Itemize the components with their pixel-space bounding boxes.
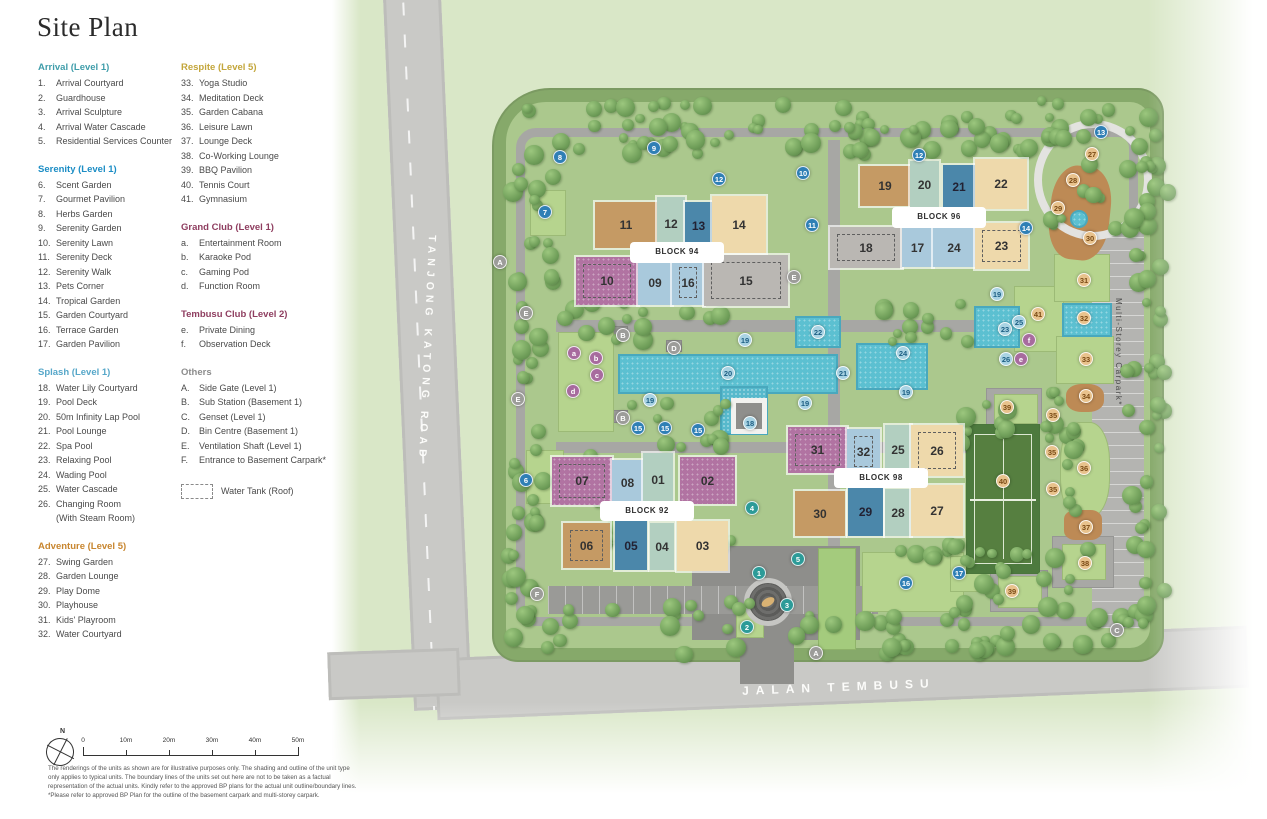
marker-34: 34 <box>1079 389 1093 403</box>
marker-31: 31 <box>1077 273 1091 287</box>
disclaimer-line: only applies to typical units. The bound… <box>48 773 356 782</box>
legend-item-label: Side Gate (Level 1) <box>199 381 277 396</box>
tree <box>1038 597 1058 617</box>
tree <box>605 603 620 618</box>
tree <box>529 328 548 347</box>
entrance-hedge <box>818 548 856 650</box>
legend-item-label: Kids' Playroom <box>56 613 116 628</box>
marker-D: D <box>667 341 681 355</box>
marker-14: 14 <box>1019 221 1033 235</box>
marker-B: B <box>616 328 630 342</box>
legend-item: 24.Wading Pool <box>38 468 180 483</box>
legend-item: 27.Swing Garden <box>38 555 180 570</box>
legend-item-label: Leisure Lawn <box>199 120 253 135</box>
legend-item-key: 1. <box>38 76 56 91</box>
tree <box>720 399 731 410</box>
legend-item-key: 11. <box>38 250 56 265</box>
marker-16: 16 <box>899 576 913 590</box>
tree <box>958 618 970 630</box>
legend-item: 10.Serenity Lawn <box>38 236 180 251</box>
legend-item: D.Bin Centre (Basement 1) <box>181 424 339 439</box>
tree <box>635 114 645 124</box>
legend-item-key: 41. <box>181 192 199 207</box>
tree <box>1144 363 1154 373</box>
tree <box>522 104 532 114</box>
tree <box>996 564 1011 579</box>
legend-item-key: 19. <box>38 395 56 410</box>
marker-37: 37 <box>1079 520 1093 534</box>
legend-item-label: Playhouse <box>56 598 98 613</box>
legend-item-label: Scent Garden <box>56 178 112 193</box>
scale-tick-label: 30m <box>206 737 219 744</box>
legend-item-label: Entrance to Basement Carpark* <box>199 453 326 468</box>
legend-section: Respite (Level 5)33.Yoga Studio34.Medita… <box>181 62 339 207</box>
legend-item-label: 50m Infinity Lap Pool <box>56 410 140 425</box>
legend-item-label: Gourmet Pavilion <box>56 192 125 207</box>
fountain-center <box>760 595 776 609</box>
legend-item: 5.Residential Services Counter <box>38 134 180 149</box>
tree <box>1011 113 1022 124</box>
tree <box>529 515 544 530</box>
tree <box>968 118 985 135</box>
legend-item: F.Entrance to Basement Carpark* <box>181 453 339 468</box>
tree <box>713 438 730 455</box>
legend-item-key: 30. <box>38 598 56 613</box>
legend-item-label: Residential Services Counter <box>56 134 172 149</box>
legend-item-key: 23. <box>38 453 56 468</box>
marker-E: E <box>519 306 533 320</box>
marker-39: 39 <box>1005 584 1019 598</box>
legend-item-label: Sub Station (Basement 1) <box>199 395 302 410</box>
legend-item-key: 14. <box>38 294 56 309</box>
legend-item-key: 34. <box>181 91 199 106</box>
legend-item-key: 36. <box>181 120 199 135</box>
tree <box>512 163 525 176</box>
scale-tick-label: 50m <box>292 737 305 744</box>
legend-item: 13.Pets Corner <box>38 279 180 294</box>
legend-item-key: 5. <box>38 134 56 149</box>
legend-item: 20.50m Infinity Lap Pool <box>38 410 180 425</box>
marker-e: e <box>1014 352 1028 366</box>
legend-item: 17.Garden Pavilion <box>38 337 180 352</box>
tree <box>573 143 585 155</box>
marker-F: F <box>530 587 544 601</box>
unit-01: 01 <box>643 453 673 506</box>
tree <box>1149 129 1162 142</box>
scale-tick-label: 0 <box>81 737 85 744</box>
legend-item-key: 9. <box>38 221 56 236</box>
tree <box>947 539 963 555</box>
legend-item: 7.Gourmet Pavilion <box>38 192 180 207</box>
legend-item-label: Guardhouse <box>56 91 106 106</box>
scale-tick <box>126 750 127 756</box>
tree <box>542 247 559 264</box>
tree <box>960 555 971 566</box>
legend-item-key: A. <box>181 381 199 396</box>
tree <box>512 506 525 519</box>
legend-item-key: 17. <box>38 337 56 352</box>
tree <box>675 646 693 664</box>
unit-06: 06 <box>563 523 610 568</box>
marker-39: 39 <box>1000 400 1014 414</box>
tree <box>586 101 602 117</box>
marker-30: 30 <box>1083 231 1097 245</box>
tree <box>903 302 920 319</box>
legend-item: 18.Water Lily Courtyard <box>38 381 180 396</box>
legend-item-key: 3. <box>38 105 56 120</box>
legend-item-label: Lounge Deck <box>199 134 252 149</box>
tree <box>1138 618 1148 628</box>
tree <box>514 177 528 191</box>
tree <box>1037 96 1046 105</box>
tree <box>732 602 746 616</box>
marker-12: 12 <box>712 172 726 186</box>
tree <box>990 134 1008 152</box>
legend-item-key: 2. <box>38 91 56 106</box>
legend-item-label: Spa Pool <box>56 439 93 454</box>
legend-item-label: Herbs Garden <box>56 207 113 222</box>
unit-29: 29 <box>848 487 883 536</box>
legend-item-label: Pool Lounge <box>56 424 107 439</box>
marker-32: 32 <box>1077 311 1091 325</box>
marker-24: 24 <box>896 346 910 360</box>
legend-item-key: D. <box>181 424 199 439</box>
wading-pool <box>856 343 928 390</box>
legend-item: 22.Spa Pool <box>38 439 180 454</box>
legend-item: 6.Scent Garden <box>38 178 180 193</box>
legend-section: Arrival (Level 1)1.Arrival Courtyard2.Gu… <box>38 62 180 149</box>
legend-column-2: Respite (Level 5)33.Yoga Studio34.Medita… <box>181 62 339 499</box>
tree <box>531 424 546 439</box>
unit-17: 17 <box>902 228 933 267</box>
legend-item: 2.Guardhouse <box>38 91 180 106</box>
legend-item: 25.Water Cascade <box>38 482 180 497</box>
tree <box>542 618 559 635</box>
marker-B: B <box>616 411 630 425</box>
relaxing-pool <box>974 306 1020 348</box>
marker-A: A <box>493 255 507 269</box>
tree <box>1085 187 1102 204</box>
marker-15: 15 <box>631 421 645 435</box>
block-label: BLOCK 98 <box>834 473 928 485</box>
legend-item: 16.Terrace Garden <box>38 323 180 338</box>
legend-item-label: Changing Room (With Steam Room) <box>56 497 135 526</box>
tree <box>544 269 560 285</box>
page-title: Site Plan <box>37 12 138 43</box>
tree <box>835 100 852 117</box>
legend-item-label: Ventilation Shaft (Level 1) <box>199 439 302 454</box>
legend-section: Splash (Level 1)18.Water Lily Courtyard1… <box>38 367 180 526</box>
marker-35: 35 <box>1046 482 1060 496</box>
legend-item-label: Pool Deck <box>56 395 97 410</box>
legend-item-label: Arrival Sculpture <box>56 105 122 120</box>
scale-tick <box>169 750 170 756</box>
legend-section: Tembusu Club (Level 2)e.Private Diningf.… <box>181 309 339 352</box>
tree <box>686 130 705 149</box>
marker-10: 10 <box>796 166 810 180</box>
scale-tick-label: 20m <box>163 737 176 744</box>
tree <box>529 195 540 206</box>
legend-item-key: 33. <box>181 76 199 91</box>
tree <box>662 136 678 152</box>
legend-item-label: Co-Working Lounge <box>199 149 279 164</box>
legend-item-label: Wading Pool <box>56 468 107 483</box>
marker-E: E <box>511 392 525 406</box>
marker-18: 18 <box>743 416 757 430</box>
legend-item: 31.Kids' Playroom <box>38 613 180 628</box>
marker-3: 3 <box>780 598 794 612</box>
tree <box>1055 130 1072 147</box>
legend-item-label: Garden Pavilion <box>56 337 120 352</box>
tree <box>508 273 526 291</box>
legend-item-label: Observation Deck <box>199 337 271 352</box>
legend-section-heading: Grand Club (Level 1) <box>181 222 339 233</box>
legend-item: 12.Serenity Walk <box>38 265 180 280</box>
legend-item: 26.Changing Room (With Steam Room) <box>38 497 180 526</box>
legend-item-key: E. <box>181 439 199 454</box>
legend-item-label: Garden Lounge <box>56 569 119 584</box>
legend-item: 23.Relaxing Pool <box>38 453 180 468</box>
scale-bar: 010m20m30m40m50m <box>83 738 298 756</box>
legend-item-key: 21. <box>38 424 56 439</box>
marker-E: E <box>787 270 801 284</box>
water-tank-label: Water Tank (Roof) <box>221 486 294 496</box>
unit-31: 31 <box>788 427 847 473</box>
tree <box>907 545 924 562</box>
unit-09: 09 <box>638 260 672 305</box>
marker-35: 35 <box>1045 445 1059 459</box>
tree <box>634 318 651 335</box>
water-tank-dashed-icon <box>181 484 213 499</box>
unit-16: 16 <box>672 260 704 305</box>
tree <box>545 169 561 185</box>
legend-item-key: 13. <box>38 279 56 294</box>
legend-item: 8.Herbs Garden <box>38 207 180 222</box>
legend-item-key: e. <box>181 323 199 338</box>
tree <box>1067 422 1080 435</box>
legend-item-key: 37. <box>181 134 199 149</box>
unit-04: 04 <box>650 523 674 570</box>
legend-item: 14.Tropical Garden <box>38 294 180 309</box>
marker-15: 15 <box>658 421 672 435</box>
legend-item-label: Gymnasium <box>199 192 247 207</box>
marker-28: 28 <box>1066 173 1080 187</box>
legend-item-key: 8. <box>38 207 56 222</box>
tree <box>825 616 842 633</box>
legend-item-label: Water Cascade <box>56 482 118 497</box>
legend-column-1: Arrival (Level 1)1.Arrival Courtyard2.Gu… <box>38 62 180 657</box>
tree <box>693 610 704 621</box>
tree <box>1080 542 1095 557</box>
legend-item-key: B. <box>181 395 199 410</box>
marker-c: c <box>590 368 604 382</box>
legend-section-heading: Others <box>181 367 339 378</box>
legend-item: 29.Play Dome <box>38 584 180 599</box>
marker-a: a <box>567 346 581 360</box>
tree <box>1020 139 1038 157</box>
tree <box>1152 259 1168 275</box>
multi-storey-carpark-label: Multi-Storey Carpark* <box>1114 298 1123 406</box>
legend-item-key: 39. <box>181 163 199 178</box>
legend-item-key: 31. <box>38 613 56 628</box>
tree <box>557 311 573 327</box>
legend-item: 37.Lounge Deck <box>181 134 339 149</box>
unit-21: 21 <box>943 165 975 208</box>
tree <box>888 337 897 346</box>
tree <box>1139 420 1154 435</box>
legend-section: Serenity (Level 1)6.Scent Garden7.Gourme… <box>38 164 180 352</box>
legend-item-label: Water Lily Courtyard <box>56 381 138 396</box>
marker-9: 9 <box>647 141 661 155</box>
legend-item-key: 4. <box>38 120 56 135</box>
marker-f: f <box>1022 333 1036 347</box>
tree <box>514 319 529 334</box>
legend-item-key: 10. <box>38 236 56 251</box>
marker-23: 23 <box>998 322 1012 336</box>
legend-item-key: 16. <box>38 323 56 338</box>
legend-item: 28.Garden Lounge <box>38 569 180 584</box>
tree <box>875 302 893 320</box>
tree <box>517 371 530 384</box>
tree <box>1157 583 1172 598</box>
marker-36: 36 <box>1077 461 1091 475</box>
tree <box>1036 571 1052 587</box>
tree <box>529 236 540 247</box>
unit-08: 08 <box>612 460 643 505</box>
tree <box>693 97 711 115</box>
unit-30: 30 <box>795 491 845 536</box>
marker-35: 35 <box>1046 408 1060 422</box>
tree <box>864 129 881 146</box>
tree <box>660 616 680 636</box>
legend-item-key: 27. <box>38 555 56 570</box>
legend-item-label: Relaxing Pool <box>56 453 112 468</box>
legend-item-key: 18. <box>38 381 56 396</box>
marker-A: A <box>809 646 823 660</box>
legend-item-key: 15. <box>38 308 56 323</box>
marker-41: 41 <box>1031 307 1045 321</box>
tree <box>710 138 720 148</box>
legend-item-key: f. <box>181 337 199 352</box>
tree <box>956 407 976 427</box>
legend-section: Adventure (Level 5)27.Swing Garden28.Gar… <box>38 541 180 642</box>
legend-item-label: Serenity Lawn <box>56 236 113 251</box>
tree <box>1045 548 1065 568</box>
tree <box>685 600 697 612</box>
tree <box>961 335 974 348</box>
tree <box>852 142 868 158</box>
tree <box>926 551 940 565</box>
unit-03: 03 <box>677 521 728 571</box>
legend-section-heading: Tembusu Club (Level 2) <box>181 309 339 320</box>
unit-02: 02 <box>680 457 735 504</box>
water-tank-legend: Water Tank (Roof) <box>181 484 339 499</box>
legend-item-key: F. <box>181 453 199 468</box>
marker-12: 12 <box>912 148 926 162</box>
tree <box>922 313 933 324</box>
tree <box>1043 633 1060 650</box>
legend-item: 9.Serenity Garden <box>38 221 180 236</box>
tree <box>1064 441 1082 459</box>
disclaimer-line: The renderings of the units as shown are… <box>48 764 356 773</box>
tree <box>1139 577 1152 590</box>
scale-tick-label: 40m <box>249 737 262 744</box>
tree <box>955 299 965 309</box>
compass-north-label: N <box>60 728 65 735</box>
tree <box>974 574 993 593</box>
legend-item-label: Serenity Garden <box>56 221 122 236</box>
marker-29: 29 <box>1051 201 1065 215</box>
legend-item: 39.BBQ Pavilion <box>181 163 339 178</box>
tree <box>679 305 694 320</box>
tree <box>541 641 554 654</box>
legend-item: 40.Tennis Court <box>181 178 339 193</box>
tree <box>649 118 667 136</box>
tree <box>1022 615 1041 634</box>
marker-7: 7 <box>538 205 552 219</box>
legend-item: 1.Arrival Courtyard <box>38 76 180 91</box>
legend-item-key: 35. <box>181 105 199 120</box>
marker-15: 15 <box>691 423 705 437</box>
tree <box>638 307 648 317</box>
unit-24: 24 <box>933 228 975 267</box>
legend-item-label: Play Dome <box>56 584 100 599</box>
marker-22: 22 <box>811 325 825 339</box>
marker-13: 13 <box>1094 125 1108 139</box>
grand-club-roof <box>558 332 614 432</box>
legend-item-key: 40. <box>181 178 199 193</box>
legend-item-label: Function Room <box>199 279 260 294</box>
legend-item: 15.Garden Courtyard <box>38 308 180 323</box>
legend-item-label: Arrival Courtyard <box>56 76 124 91</box>
tree <box>1129 248 1143 262</box>
marker-33: 33 <box>1079 352 1093 366</box>
tree <box>563 604 575 616</box>
legend-item: 34.Meditation Deck <box>181 91 339 106</box>
tree <box>616 98 635 117</box>
legend-item-label: Swing Garden <box>56 555 113 570</box>
legend-item-key: b. <box>181 250 199 265</box>
block-label: BLOCK 94 <box>630 247 724 259</box>
legend-section-heading: Serenity (Level 1) <box>38 164 180 175</box>
tree <box>855 611 875 631</box>
tree <box>508 550 518 560</box>
tree <box>987 549 997 559</box>
scale-tick <box>212 750 213 756</box>
legend-item-label: Yoga Studio <box>199 76 247 91</box>
tree <box>660 397 673 410</box>
legend-item-label: Garden Courtyard <box>56 308 128 323</box>
legend-item-label: Gaming Pod <box>199 265 249 280</box>
tree <box>657 97 671 111</box>
tree <box>1140 475 1153 488</box>
legend-item-key: c. <box>181 265 199 280</box>
unit-07: 07 <box>552 457 612 505</box>
legend-item-label: Entertainment Room <box>199 236 282 251</box>
legend-item-key: 28. <box>38 569 56 584</box>
legend-item: B.Sub Station (Basement 1) <box>181 395 339 410</box>
legend-item-label: Arrival Water Cascade <box>56 120 146 135</box>
block-label: BLOCK 92 <box>600 506 694 518</box>
tree <box>676 442 686 452</box>
tree <box>657 436 674 453</box>
legend-item-label: Private Dining <box>199 323 255 338</box>
marker-19: 19 <box>990 287 1004 301</box>
tree <box>949 607 960 618</box>
marker-b: b <box>589 351 603 365</box>
tree <box>1119 160 1137 178</box>
legend-item: 38.Co-Working Lounge <box>181 149 339 164</box>
